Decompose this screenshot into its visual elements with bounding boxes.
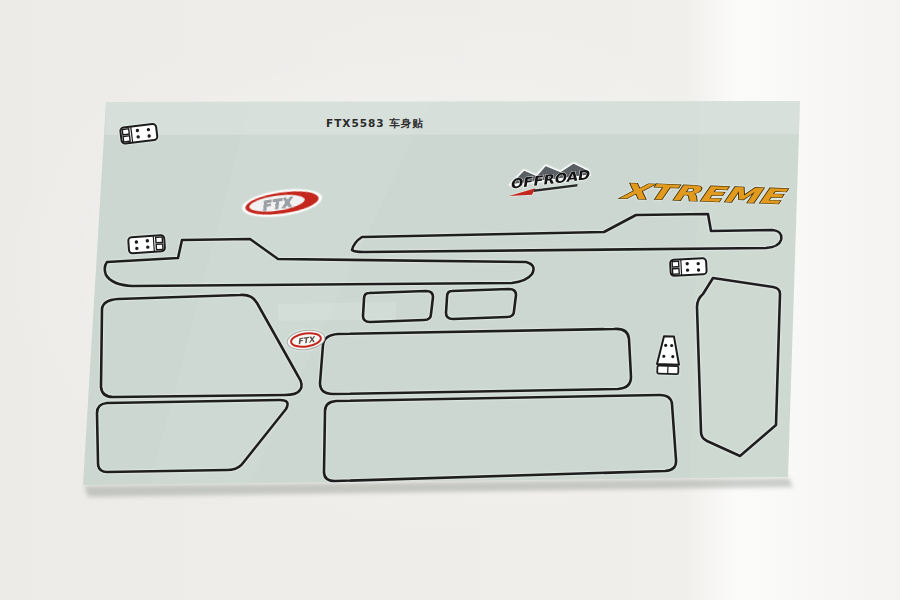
sheet-label: FTX5583 车身贴 (326, 117, 424, 129)
hinge-decal-icon (670, 258, 707, 276)
hinge-decal-icon (120, 124, 158, 144)
photo-background: FTX5583 车身贴 FTX OFFROAD (0, 0, 900, 600)
sticker-sheet-photo: FTX5583 车身贴 FTX OFFROAD (0, 0, 900, 600)
hinge-decal-icon (128, 235, 165, 253)
